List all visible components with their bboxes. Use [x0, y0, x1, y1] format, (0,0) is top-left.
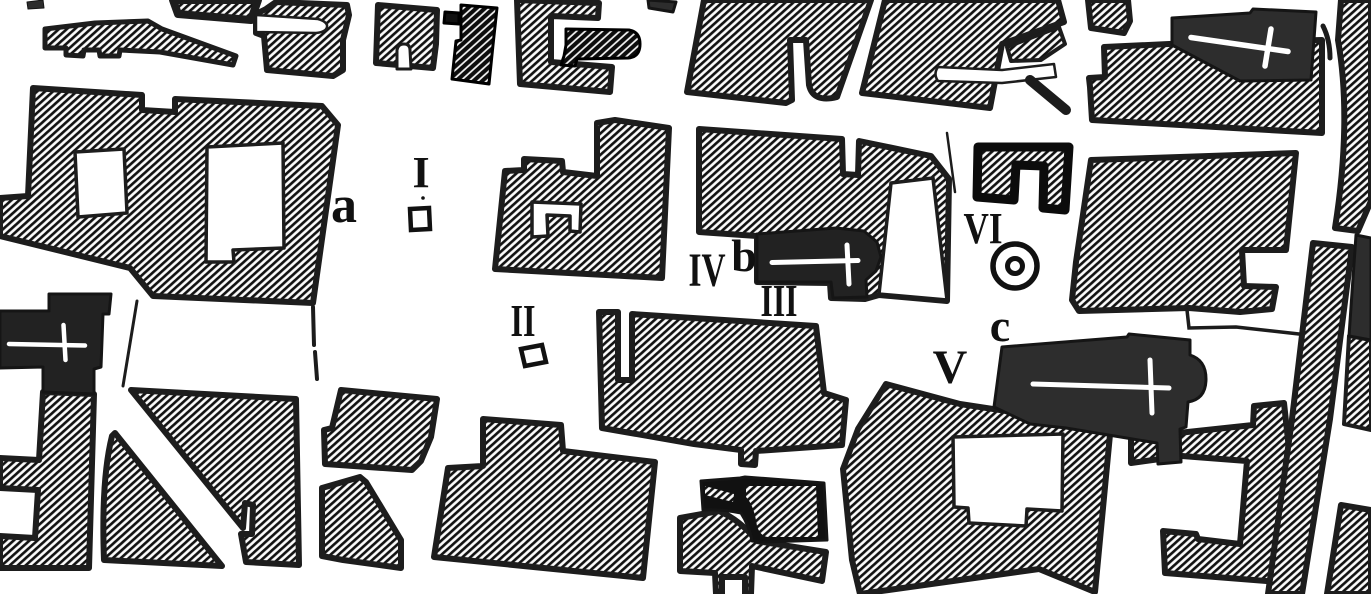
svg-text:I: I: [412, 148, 429, 197]
svg-text:a: a: [331, 177, 357, 234]
svg-text:II: II: [511, 295, 536, 346]
svg-text:c: c: [990, 300, 1010, 351]
svg-text:V: V: [933, 341, 968, 394]
svg-text:b: b: [731, 230, 757, 281]
svg-text:III: III: [761, 275, 798, 326]
svg-text:VI: VI: [964, 204, 1003, 253]
svg-text:IV: IV: [689, 244, 726, 297]
